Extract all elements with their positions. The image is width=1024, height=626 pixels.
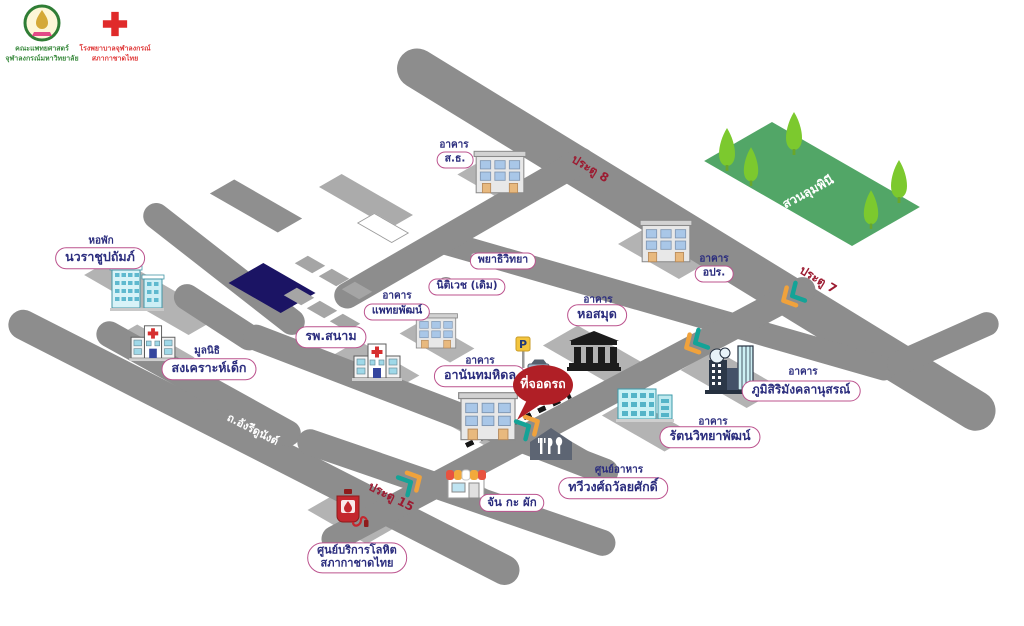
label-bhumisiri-pre: อาคาร bbox=[788, 365, 817, 380]
parking-balloon: ที่จอดรถ bbox=[511, 364, 575, 422]
tree-icon bbox=[784, 112, 804, 156]
blood-bag-icon bbox=[327, 488, 369, 532]
label-phaethayaphat-pre: อาคาร bbox=[382, 289, 411, 304]
label-navarat: นวราชูปถัมภ์ bbox=[55, 247, 145, 269]
building-sor-thor-icon bbox=[471, 147, 529, 195]
label-blood-center-line2: สภากาชาดไทย bbox=[317, 557, 397, 570]
red-cross-logo-icon bbox=[101, 10, 129, 38]
tree-icon bbox=[717, 128, 737, 172]
building-footprint bbox=[210, 180, 302, 233]
building-library-icon bbox=[567, 329, 621, 371]
label-rattana: รัตนวิทยาพัฒน์ bbox=[659, 426, 760, 448]
faculty-of-medicine-logo-icon bbox=[22, 3, 62, 43]
label-sor-thor: ส.ธ. bbox=[437, 151, 474, 168]
label-child-foundation: สงเคราะห์เด็ก bbox=[161, 358, 256, 380]
building-rattana-icon bbox=[614, 381, 678, 425]
tree-icon bbox=[889, 158, 909, 206]
building-navarat-dorm-icon bbox=[106, 262, 170, 312]
label-library: หอสมุด bbox=[567, 304, 627, 326]
small-block bbox=[295, 256, 325, 274]
label-jan-ka-phak: จัน กะ ผัก bbox=[479, 494, 544, 512]
label-phaethayaphat: แพทยพัฒน์ bbox=[364, 303, 430, 320]
label-sor-thor-pre: อาคาร bbox=[439, 138, 468, 153]
label-child-foundation-pre: มูลนิธิ bbox=[194, 344, 220, 359]
parking-balloon-label: ที่จอดรถ bbox=[520, 374, 565, 394]
small-block bbox=[307, 301, 337, 319]
label-opr-pre: อาคาร bbox=[699, 252, 728, 267]
label-forensic-old: นิติเวช (เดิม) bbox=[428, 278, 505, 295]
label-food-center-pre: ศูนย์อาหาร bbox=[595, 463, 643, 478]
tree-icon bbox=[742, 147, 760, 187]
label-field-hospital: รพ.สนาม bbox=[295, 326, 366, 348]
label-bhumisiri: ภูมิสิริมังคลานุสรณ์ bbox=[742, 381, 861, 402]
faculty-logo-text-2: จุฬาลงกรณ์มหาวิทยาลัย bbox=[5, 54, 78, 65]
hospital-logo-text-2: สภากาชาดไทย bbox=[92, 54, 138, 65]
building-child-foundation-icon bbox=[128, 322, 178, 362]
building-opr-icon bbox=[637, 216, 695, 264]
campus-map: คณะแพทยศาสตร์ จุฬาลงกรณ์มหาวิทยาลัย โรงพ… bbox=[0, 0, 1024, 626]
label-blood-center-line1: ศูนย์บริการโลหิต bbox=[317, 544, 397, 557]
tree-icon bbox=[862, 190, 880, 230]
label-pathology: พยาธิวิทยา bbox=[470, 252, 536, 269]
label-food-center: ทวีวงศ์ถวัลยศักดิ์ bbox=[558, 477, 668, 499]
label-blood-center: ศูนย์บริการโลหิต สภากาชาดไทย bbox=[307, 542, 407, 573]
parking-sign-letter: P bbox=[519, 338, 527, 351]
label-opr: อปร. bbox=[695, 265, 734, 282]
